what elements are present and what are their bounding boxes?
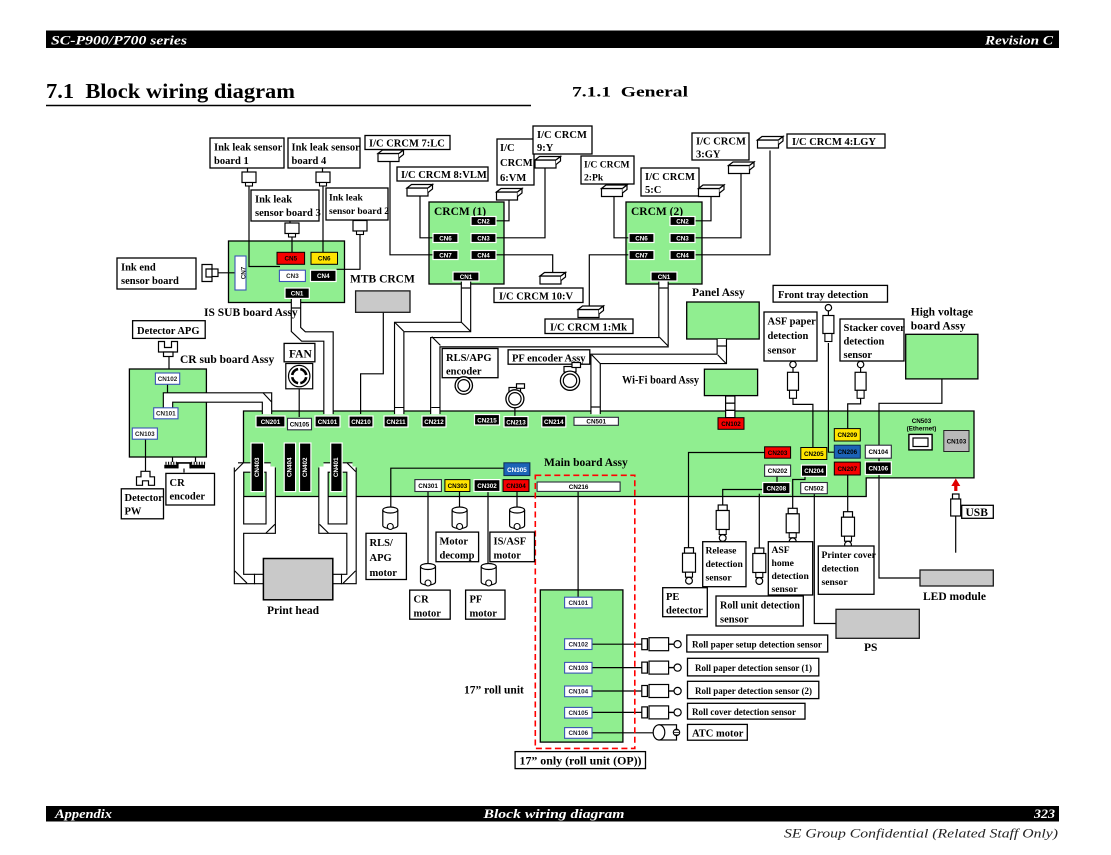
svg-text:CN401: CN401 <box>333 457 340 477</box>
svg-text:CN1: CN1 <box>291 291 304 298</box>
svg-text:Detector: Detector <box>125 493 164 504</box>
svg-text:home: home <box>772 558 795 569</box>
svg-text:Panel Assy: Panel Assy <box>692 287 745 299</box>
svg-text:CN404: CN404 <box>287 457 294 477</box>
svg-text:CR: CR <box>170 478 186 489</box>
svg-text:(Ethernet): (Ethernet) <box>907 426 937 433</box>
svg-text:CN213: CN213 <box>506 419 526 426</box>
svg-text:CN6: CN6 <box>318 256 331 263</box>
svg-text:CN5: CN5 <box>284 256 297 263</box>
svg-text:MTB CRCM: MTB CRCM <box>350 274 415 286</box>
svg-text:CN2: CN2 <box>676 218 689 225</box>
svg-text:Roll paper detection sensor (1: Roll paper detection sensor (1) <box>695 663 812 674</box>
svg-text:detector: detector <box>666 606 703 617</box>
svg-text:CN3: CN3 <box>676 235 689 242</box>
svg-text:detection: detection <box>844 337 885 348</box>
svg-text:6:VM: 6:VM <box>500 173 526 184</box>
svg-text:PE: PE <box>666 592 679 603</box>
svg-text:CN501: CN501 <box>586 419 606 426</box>
svg-text:IS/ASF: IS/ASF <box>494 537 527 548</box>
svg-text:CN201: CN201 <box>261 419 281 426</box>
svg-text:CN403: CN403 <box>254 457 261 477</box>
svg-text:Ink leak sensor: Ink leak sensor <box>214 143 283 154</box>
svg-text:CN503: CN503 <box>912 418 932 425</box>
svg-text:CN502: CN502 <box>804 486 824 493</box>
svg-text:PS: PS <box>864 642 877 654</box>
svg-text:Front tray detection: Front tray detection <box>778 290 868 301</box>
svg-text:IS SUB board Assy: IS SUB board Assy <box>204 307 298 319</box>
svg-text:CR: CR <box>414 595 430 606</box>
svg-text:encoder: encoder <box>170 492 206 503</box>
svg-text:SE Group Confidential (Related: SE Group Confidential (Related Staff Onl… <box>784 826 1058 841</box>
svg-text:2:Pk: 2:Pk <box>584 173 604 184</box>
svg-text:CN302: CN302 <box>477 483 497 490</box>
svg-text:CN7: CN7 <box>240 266 247 279</box>
svg-text:Release: Release <box>706 546 738 557</box>
svg-text:CN203: CN203 <box>768 450 788 457</box>
svg-text:CN205: CN205 <box>804 451 824 458</box>
svg-text:APG: APG <box>370 553 392 564</box>
svg-text:I/C CRCM: I/C CRCM <box>645 172 695 183</box>
svg-text:sensor: sensor <box>822 577 849 588</box>
svg-text:Roll paper detection sensor (2: Roll paper detection sensor (2) <box>695 686 812 697</box>
svg-text:sensor: sensor <box>768 346 797 357</box>
svg-text:7.1 Block wiring diagram: 7.1 Block wiring diagram <box>46 79 295 103</box>
svg-text:CN4: CN4 <box>477 252 490 259</box>
svg-text:Print head: Print head <box>267 605 320 617</box>
svg-text:Printer cover: Printer cover <box>822 550 877 561</box>
svg-text:Ink leak sensor: Ink leak sensor <box>292 143 361 154</box>
svg-text:17” only (roll unit (OP)): 17” only (roll unit (OP)) <box>520 756 642 768</box>
svg-text:I/C CRCM 4:LGY: I/C CRCM 4:LGY <box>792 137 876 148</box>
svg-text:Roll cover detection sensor: Roll cover detection sensor <box>692 707 797 718</box>
svg-text:RLS/APG: RLS/APG <box>446 353 492 364</box>
svg-text:I/C CRCM 8:VLM: I/C CRCM 8:VLM <box>401 170 487 181</box>
svg-text:CN104: CN104 <box>868 449 888 456</box>
svg-text:Revision C: Revision C <box>984 33 1054 48</box>
svg-text:CR sub board Assy: CR sub board Assy <box>180 354 275 366</box>
svg-text:CN7: CN7 <box>635 252 648 259</box>
svg-text:ASF: ASF <box>772 545 790 556</box>
svg-text:sensor board: sensor board <box>121 276 179 287</box>
svg-text:FAN: FAN <box>289 349 312 361</box>
svg-text:CN104: CN104 <box>568 689 588 696</box>
svg-text:CN1: CN1 <box>658 274 671 281</box>
svg-text:PW: PW <box>125 507 142 518</box>
svg-text:Block wiring diagram: Block wiring diagram <box>482 806 624 821</box>
svg-text:CN2: CN2 <box>477 218 490 225</box>
svg-text:SC-P900/P700 series: SC-P900/P700 series <box>51 33 187 48</box>
svg-text:CN105: CN105 <box>568 710 588 717</box>
svg-text:I/C CRCM: I/C CRCM <box>537 130 587 141</box>
svg-text:USB: USB <box>966 507 989 519</box>
svg-text:CN305: CN305 <box>507 467 527 474</box>
svg-text:Stacker cover: Stacker cover <box>844 323 906 334</box>
svg-text:I/C: I/C <box>500 143 515 154</box>
svg-text:I/C CRCM: I/C CRCM <box>696 137 746 148</box>
svg-text:motor: motor <box>494 551 522 562</box>
svg-text:CN102: CN102 <box>568 641 588 648</box>
svg-text:CN103: CN103 <box>947 439 967 446</box>
svg-text:Appendix: Appendix <box>54 807 112 821</box>
svg-text:motor: motor <box>370 568 398 579</box>
svg-text:CN216: CN216 <box>569 484 589 491</box>
svg-text:board 1: board 1 <box>214 156 249 167</box>
svg-text:I/C CRCM: I/C CRCM <box>584 160 630 171</box>
svg-text:CN6: CN6 <box>635 235 648 242</box>
svg-text:CN215: CN215 <box>477 417 497 424</box>
svg-text:I/C CRCM 1:Mk: I/C CRCM 1:Mk <box>550 323 627 334</box>
svg-text:CN103: CN103 <box>135 431 155 438</box>
svg-text:ASF paper: ASF paper <box>768 317 817 328</box>
svg-text:CN103: CN103 <box>568 665 588 672</box>
svg-text:board Assy: board Assy <box>911 321 966 333</box>
svg-text:RLS/: RLS/ <box>370 538 394 549</box>
svg-text:CN101: CN101 <box>156 411 176 418</box>
svg-text:7.1.1 General: 7.1.1 General <box>572 85 688 101</box>
svg-text:detection: detection <box>706 559 744 570</box>
svg-text:Roll paper setup detection sen: Roll paper setup detection sensor <box>692 640 823 651</box>
svg-text:17” roll unit: 17” roll unit <box>464 685 524 697</box>
svg-text:PF: PF <box>470 595 483 606</box>
svg-text:CN3: CN3 <box>286 273 299 280</box>
svg-text:CN301: CN301 <box>418 483 438 490</box>
svg-text:CN402: CN402 <box>302 457 309 477</box>
svg-text:CN4: CN4 <box>676 252 689 259</box>
svg-text:board 4: board 4 <box>292 156 327 167</box>
svg-text:9:Y: 9:Y <box>537 143 554 154</box>
svg-text:I/C CRCM 7:LC: I/C CRCM 7:LC <box>369 139 445 150</box>
svg-text:CN202: CN202 <box>768 468 788 475</box>
svg-text:decomp: decomp <box>440 551 475 562</box>
svg-text:sensor: sensor <box>706 573 733 584</box>
svg-text:CN102: CN102 <box>721 421 741 428</box>
svg-text:CN208: CN208 <box>766 486 786 493</box>
svg-text:Motor: Motor <box>440 537 469 548</box>
svg-text:CN3: CN3 <box>477 235 490 242</box>
svg-text:CN101: CN101 <box>568 600 588 607</box>
svg-text:323: 323 <box>1033 807 1055 821</box>
svg-text:I/C CRCM 10:V: I/C CRCM 10:V <box>499 292 573 303</box>
svg-text:Detector APG: Detector APG <box>137 326 200 337</box>
svg-text:5:C: 5:C <box>645 185 661 196</box>
svg-text:CN101: CN101 <box>318 419 338 426</box>
svg-text:motor: motor <box>470 609 498 620</box>
svg-text:CN105: CN105 <box>290 422 310 429</box>
svg-text:detection: detection <box>822 564 860 575</box>
svg-text:ATC motor: ATC motor <box>692 729 744 740</box>
svg-text:CN303: CN303 <box>448 483 468 490</box>
svg-text:CN212: CN212 <box>424 419 444 426</box>
svg-text:CN211: CN211 <box>386 419 406 426</box>
svg-text:CN207: CN207 <box>837 466 857 473</box>
svg-text:Roll unit detection: Roll unit detection <box>720 601 800 612</box>
svg-text:CN1: CN1 <box>460 274 473 281</box>
svg-text:3:GY: 3:GY <box>696 150 721 161</box>
svg-text:CN209: CN209 <box>837 432 857 439</box>
svg-text:CRCM: CRCM <box>500 158 533 169</box>
svg-text:CN210: CN210 <box>351 419 371 426</box>
svg-text:sensor board 2: sensor board 2 <box>329 206 389 217</box>
svg-text:detection: detection <box>768 331 809 342</box>
svg-text:Main board Assy: Main board Assy <box>544 457 628 469</box>
svg-text:Ink leak: Ink leak <box>329 193 364 204</box>
svg-text:sensor: sensor <box>844 350 873 361</box>
svg-text:detection: detection <box>772 571 810 582</box>
svg-text:CN106: CN106 <box>568 730 588 737</box>
svg-text:High voltage: High voltage <box>911 307 973 319</box>
svg-text:CN106: CN106 <box>868 466 888 473</box>
svg-text:encoder: encoder <box>446 367 482 378</box>
svg-text:CN304: CN304 <box>506 483 526 490</box>
svg-text:sensor: sensor <box>772 584 799 595</box>
svg-text:Ink leak: Ink leak <box>255 195 292 206</box>
svg-text:Ink end: Ink end <box>121 263 156 274</box>
svg-text:CN6: CN6 <box>439 235 452 242</box>
svg-text:CN4: CN4 <box>317 273 330 280</box>
svg-text:CN206: CN206 <box>837 449 857 456</box>
svg-text:CN102: CN102 <box>158 376 178 383</box>
svg-text:Wi-Fi board Assy: Wi-Fi board Assy <box>622 375 699 387</box>
svg-text:motor: motor <box>414 609 442 620</box>
svg-text:CN204: CN204 <box>804 468 824 475</box>
svg-text:CN214: CN214 <box>544 419 564 426</box>
svg-text:CN7: CN7 <box>439 252 452 259</box>
svg-text:LED module: LED module <box>923 591 986 603</box>
svg-text:sensor: sensor <box>720 615 749 626</box>
svg-text:sensor board 3: sensor board 3 <box>255 208 321 219</box>
